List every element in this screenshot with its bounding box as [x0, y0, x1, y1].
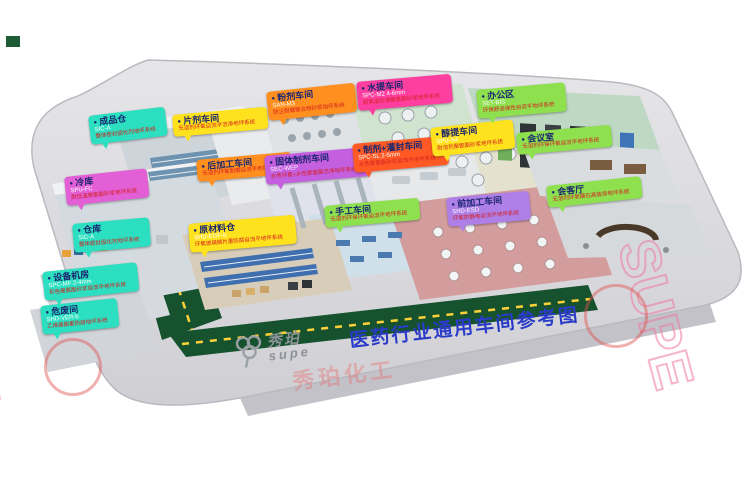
corner-badge	[6, 36, 20, 47]
label-tail-pointer	[488, 116, 497, 124]
label-tail-pointer	[84, 250, 93, 258]
label-tail-pointer	[184, 135, 193, 143]
label-tail-pointer	[101, 142, 110, 150]
label-tail-pointer	[368, 108, 377, 116]
label-tail-pointer	[336, 226, 345, 234]
watermark-stamp-right	[584, 284, 648, 348]
label-tail-pointer	[364, 170, 373, 178]
label-tail-pointer	[443, 154, 452, 162]
label-tail-pointer	[208, 180, 217, 188]
label-tail-pointer	[53, 332, 62, 340]
label-tail-pointer	[458, 224, 467, 232]
factory-reference-diagram: 医药行业通用车间参考图 秀珀 supe SUPE SUPE 秀珀化工 • 成品仓…	[0, 0, 750, 500]
label-tail-pointer	[528, 153, 537, 161]
isometric-plant-scene	[0, 0, 750, 500]
label-tail-pointer	[77, 203, 86, 211]
label-tail-pointer	[200, 250, 209, 258]
label-tail-pointer	[558, 205, 567, 213]
clover-logo-icon	[232, 332, 266, 369]
watermark-stamp-left	[44, 338, 102, 396]
label-tail-pointer	[279, 118, 288, 126]
logo-name-en: supe	[268, 345, 312, 363]
label-tail-pointer	[276, 182, 285, 190]
